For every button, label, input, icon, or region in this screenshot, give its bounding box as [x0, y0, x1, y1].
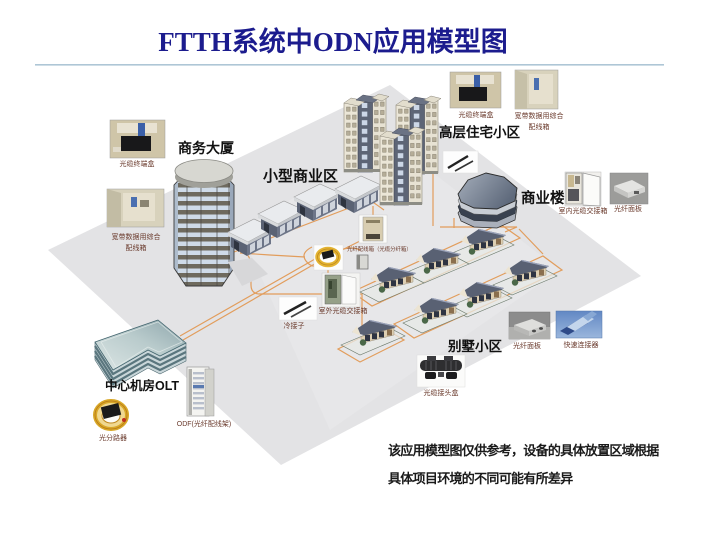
svg-text:光纤配线箱（光缆分纤箱）: 光纤配线箱（光缆分纤箱） [347, 245, 412, 253]
svg-text:高层住宅小区: 高层住宅小区 [439, 124, 520, 140]
svg-text:光缆终端盒: 光缆终端盒 [459, 110, 494, 119]
svg-text:室外光缆交接箱: 室外光缆交接箱 [319, 306, 368, 315]
svg-text:FTTH系统中ODN应用模型图: FTTH系统中ODN应用模型图 [158, 26, 508, 57]
svg-text:快速连接器: 快速连接器 [564, 340, 599, 349]
svg-text:小型商业区: 小型商业区 [263, 167, 338, 185]
svg-text:别墅小区: 别墅小区 [447, 339, 502, 354]
svg-text:具体项目环境的不同可能有所差异: 具体项目环境的不同可能有所差异 [388, 471, 573, 486]
svg-text:商业楼: 商业楼 [521, 189, 565, 207]
svg-text:该应用模型图仅供参考，设备的具体放置区域根据: 该应用模型图仅供参考，设备的具体放置区域根据 [388, 443, 659, 458]
svg-text:冷接子: 冷接子 [284, 321, 305, 330]
svg-text:中心机房OLT: 中心机房OLT [105, 378, 179, 393]
svg-text:商务大厦: 商务大厦 [178, 140, 235, 156]
svg-text:光缆终端盒: 光缆终端盒 [120, 159, 155, 168]
svg-text:光缆接头盒: 光缆接头盒 [424, 388, 459, 397]
svg-text:光分路器: 光分路器 [99, 433, 127, 442]
svg-text:配线箱: 配线箱 [529, 122, 550, 131]
svg-text:光纤面板: 光纤面板 [614, 204, 642, 213]
svg-text:宽带数据用综合: 宽带数据用综合 [515, 111, 564, 120]
svg-text:室内光缆交接箱: 室内光缆交接箱 [559, 206, 608, 215]
svg-text:光纤面板: 光纤面板 [513, 341, 541, 350]
svg-text:配线箱: 配线箱 [126, 243, 147, 252]
svg-text:宽带数据用综合: 宽带数据用综合 [112, 232, 161, 241]
svg-text:ODF(光纤配线架): ODF(光纤配线架) [177, 419, 231, 428]
